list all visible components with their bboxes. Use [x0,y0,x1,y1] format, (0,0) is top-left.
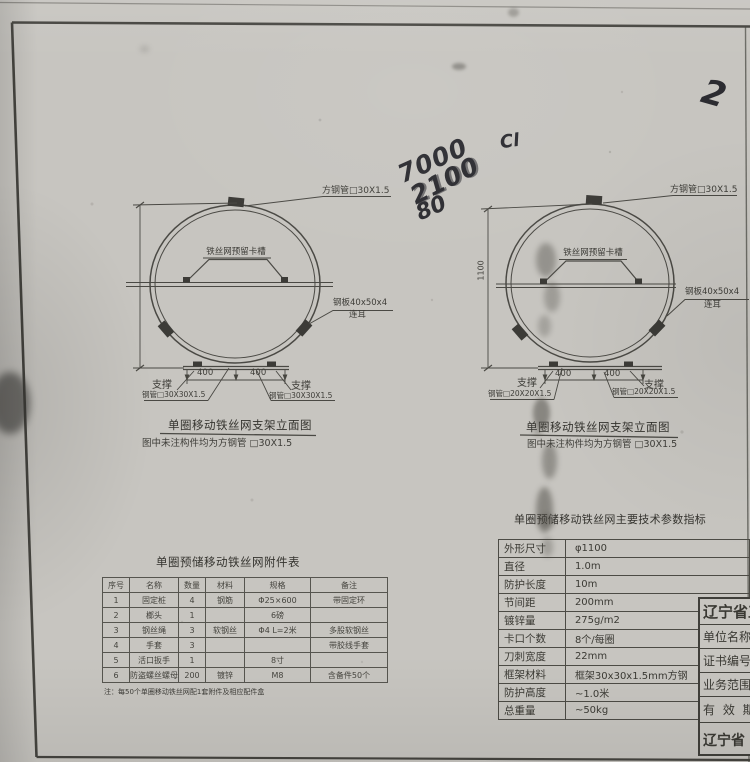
title-block-row: 业务范围 [700,673,750,697]
right-plate-lug-label: 连耳 [704,301,721,310]
clamp-blocks [158,197,313,338]
slot-trapezoid [544,261,639,283]
title-block-row: 辽宁省工 [700,599,750,625]
left-plate-lug-label: 连耳 [349,311,366,320]
left-diagram-title: 单圈移动铁丝网支架立面图 [168,419,312,432]
ring-inner [155,210,315,358]
attachments-table: 序号名称数量材料规格备注 1固定桩4钢筋Φ25×600带固定环 2榔头16磅 3… [102,577,388,683]
mid-bar [496,284,676,288]
right-height-dim-label: 1100 [478,258,487,282]
title-underline [160,434,316,436]
slot-trapezoid [187,260,285,282]
right-plate-label: 钢板40x50x4 [685,288,739,297]
spec-row: 外形尺寸φ1100 [499,540,750,558]
ring-outer [506,204,674,362]
ring-inner [511,209,669,357]
leader-square-tube [603,196,737,204]
photographed-engineering-drawing: 方钢管□30X1.5 铁丝网预留卡槽 钢板40x50x4 连耳 400 400 … [0,0,750,762]
handwritten-mark: Cl [499,130,521,153]
spec-row: 防护长度10m [499,576,750,594]
table-row: 2榔头16磅 [103,608,388,623]
table-row: 4手套3带胶线手套 [103,638,388,653]
spec-table-title: 单圈预储移动铁丝网主要技术参数指标 [514,514,706,526]
right-ring-diagram [481,195,749,438]
attachments-table-note: 注：每50个单圈移动铁丝网配1套附件及相应配件盒 [104,689,264,697]
left-dim-400-a: 400 [197,369,213,378]
left-plate-label: 钢板40x50x4 [333,299,387,308]
left-dim-400-b: 400 [250,369,266,378]
left-tube-note-l: 钢管□30X30X1.5 [142,391,205,399]
table-row: 3钢丝绳3软钢丝Φ4 L=2米多股软钢丝 [103,623,388,638]
left-diagram-subtitle: 图中未注构件均为方钢管 □30X1.5 [142,439,292,449]
table-header-row: 序号名称数量材料规格备注 [103,578,388,593]
table-row: 1固定桩4钢筋Φ25×600带固定环 [103,593,388,608]
title-underline [520,435,678,438]
title-block-row: 有 效 期 [700,697,750,723]
left-mesh-slot-label: 铁丝网预留卡槽 [200,248,272,257]
right-diagram-title: 单圈移动铁丝网支架立面图 [526,421,670,434]
right-dim-400-b: 400 [604,370,620,379]
right-dim-400-a: 400 [555,370,571,379]
leader-square-tube [245,197,391,207]
table-row: 6防盗螺丝螺母200镀锌M8含备件50个 [103,668,388,683]
table-row: 5活口扳手18寸 [103,653,388,668]
right-diagram-subtitle: 图中未注构件均为方钢管 □30X1.5 [527,440,677,450]
mid-bar [126,283,333,287]
right-support-label-l: 支撑 [517,378,537,389]
right-square-tube-label: 方钢管□30X1.5 [670,186,737,196]
attachments-table-title: 单圈预储移动铁丝网附件表 [156,556,300,569]
left-square-tube-label: 方钢管□30X1.5 [322,187,389,197]
left-tube-note-r: 钢管□30X30X1.5 [269,392,332,400]
certificate-title-block: 辽宁省工 单位名称 证书编号 业务范围 有 效 期 辽宁省 [698,597,750,756]
ring-outer [150,205,320,363]
clamp-blocks [512,195,666,341]
spec-row: 直径1.0m [499,558,750,576]
right-tube-note-l: 钢管□20X20X1.5 [488,390,551,398]
title-block-row: 单位名称 [700,625,750,649]
right-mesh-slot-label: 铁丝网预留卡槽 [557,249,629,258]
right-tube-note-r: 钢管□20X20X1.5 [612,388,675,396]
title-block-row: 证书编号 [700,649,750,673]
title-block-row: 辽宁省 [700,723,750,756]
